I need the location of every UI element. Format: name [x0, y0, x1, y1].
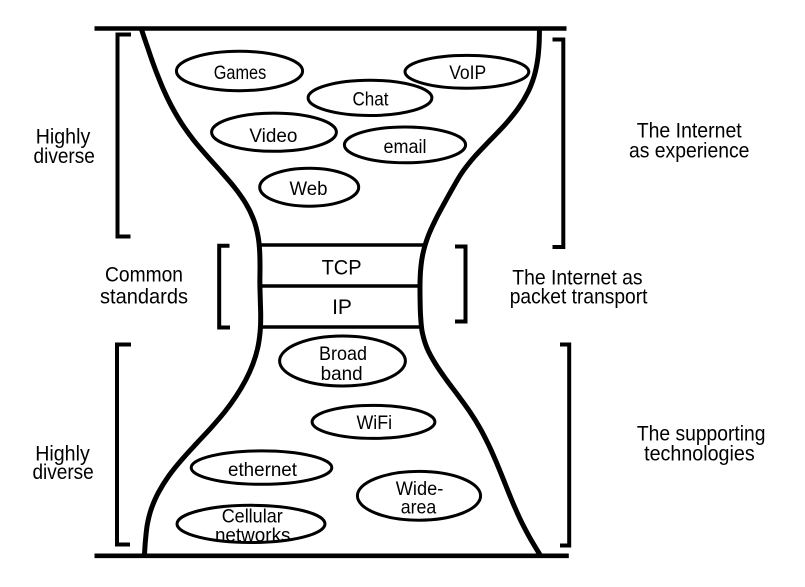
- svg-text:Common: Common: [105, 264, 183, 287]
- svg-text:email: email: [384, 136, 427, 158]
- svg-text:ethernet: ethernet: [228, 459, 298, 481]
- svg-text:TCP: TCP: [322, 256, 362, 279]
- svg-text:area: area: [401, 497, 437, 519]
- svg-text:networks: networks: [215, 525, 291, 547]
- svg-text:as experience: as experience: [629, 139, 749, 162]
- svg-text:packet transport: packet transport: [510, 285, 648, 308]
- svg-text:WiFi: WiFi: [357, 412, 393, 434]
- svg-text:Games: Games: [214, 62, 267, 84]
- svg-text:technologies: technologies: [644, 442, 755, 465]
- svg-text:Chat: Chat: [353, 88, 389, 110]
- svg-text:standards: standards: [100, 285, 188, 308]
- svg-text:Video: Video: [249, 125, 297, 147]
- svg-text:diverse: diverse: [34, 145, 95, 168]
- svg-text:diverse: diverse: [32, 461, 93, 484]
- svg-text:band: band: [321, 363, 363, 385]
- svg-text:Web: Web: [290, 178, 328, 200]
- svg-text:Broad: Broad: [319, 343, 367, 365]
- svg-text:VoIP: VoIP: [449, 62, 486, 84]
- svg-text:IP: IP: [332, 296, 352, 319]
